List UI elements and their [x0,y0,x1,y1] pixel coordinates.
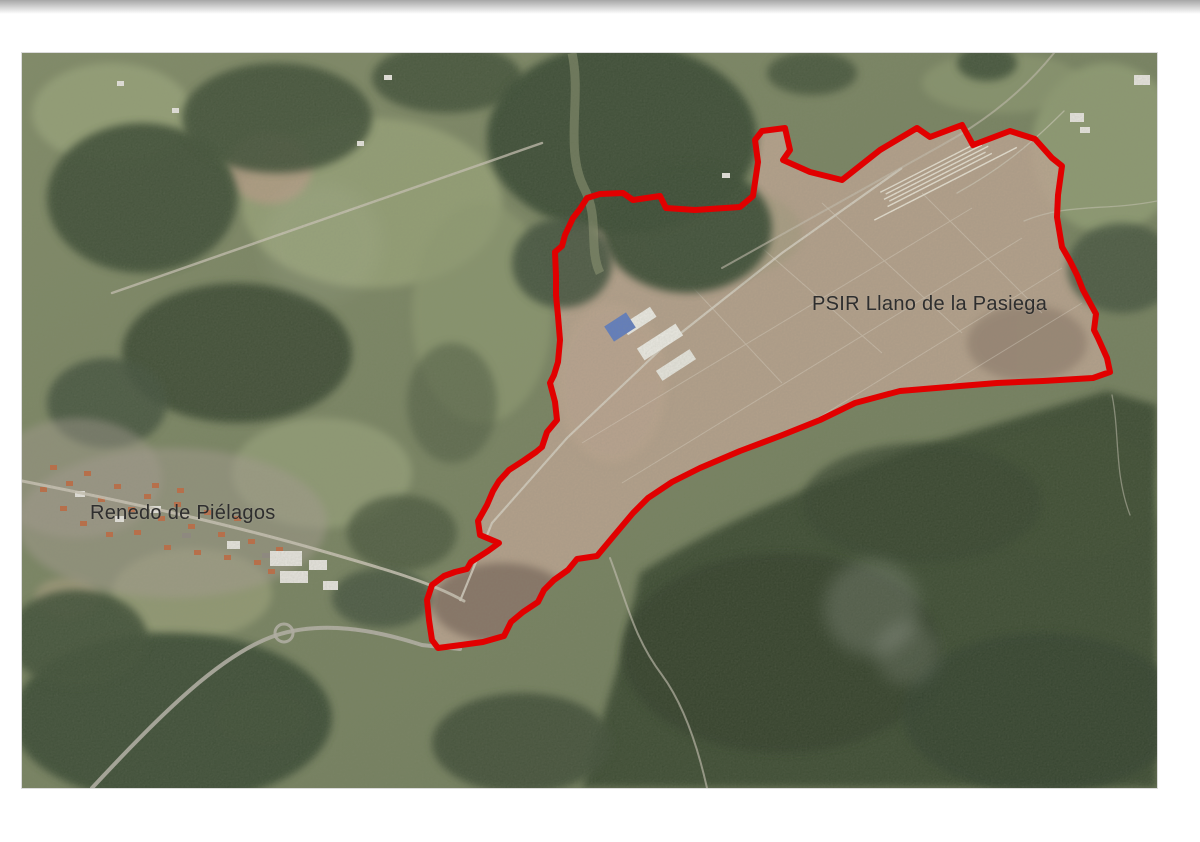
page: { "map": { "kind": "satellite-aerial-pho… [0,0,1200,842]
photo-grain [22,53,1157,788]
top-gradient-strip [0,0,1200,14]
map-terrain-svg [22,53,1157,788]
aerial-map-image: PSIR Llano de la Pasiega Renedo de Piéla… [22,53,1157,788]
